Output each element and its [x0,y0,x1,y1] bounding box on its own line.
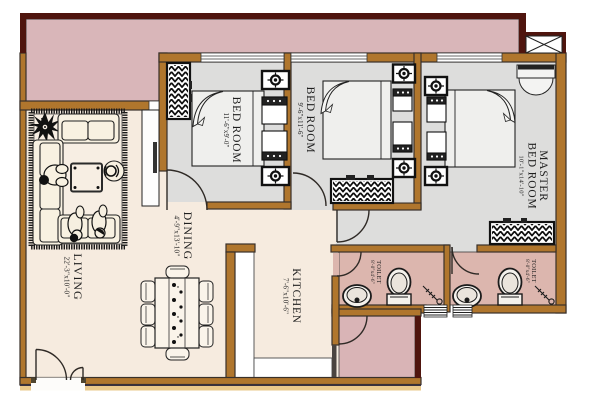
svg-text:LIVING: LIVING [71,253,85,300]
svg-text:9'-6"x11'-6": 9'-6"x11'-6" [296,102,303,137]
svg-text:8'-0"x4'-6": 8'-0"x4'-6" [524,259,530,283]
svg-text:BED ROOM: BED ROOM [304,87,316,154]
svg-text:TOILET: TOILET [375,260,382,283]
svg-text:4'-9"x13'-10": 4'-9"x13'-10" [173,215,181,256]
svg-text:DINING: DINING [181,212,195,261]
svg-text:MASTER: MASTER [537,150,549,202]
svg-text:BED ROOM: BED ROOM [526,142,538,209]
svg-text:TOILET: TOILET [530,259,537,282]
svg-text:8'-0"x4'-6": 8'-0"x4'-6" [369,260,375,284]
svg-text:BED ROOM: BED ROOM [230,97,242,164]
svg-text:22'-3"x10'-0": 22'-3"x10'-0" [63,256,71,297]
svg-text:7'-6"x10'-6": 7'-6"x10'-6" [282,278,290,314]
svg-text:11'-6"x9'-0": 11'-6"x9'-0" [222,112,229,147]
svg-text:KITCHEN: KITCHEN [290,268,302,323]
svg-text:10'-1"x14'-10": 10'-1"x14'-10" [518,155,525,196]
